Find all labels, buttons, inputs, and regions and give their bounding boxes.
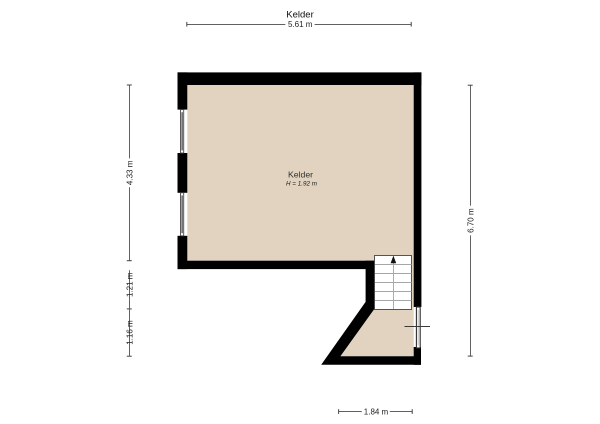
- svg-text:H = 1.92 m: H = 1.92 m: [286, 181, 317, 188]
- svg-text:1.84 m: 1.84 m: [364, 407, 389, 416]
- svg-text:1.16 m: 1.16 m: [125, 320, 134, 345]
- svg-text:Kelder: Kelder: [288, 169, 313, 179]
- svg-text:4.33 m: 4.33 m: [125, 160, 134, 185]
- svg-text:1.21 m: 1.21 m: [125, 272, 134, 297]
- svg-text:Kelder: Kelder: [286, 10, 313, 21]
- svg-text:5.61 m: 5.61 m: [288, 20, 313, 29]
- svg-text:6.70 m: 6.70 m: [466, 208, 475, 233]
